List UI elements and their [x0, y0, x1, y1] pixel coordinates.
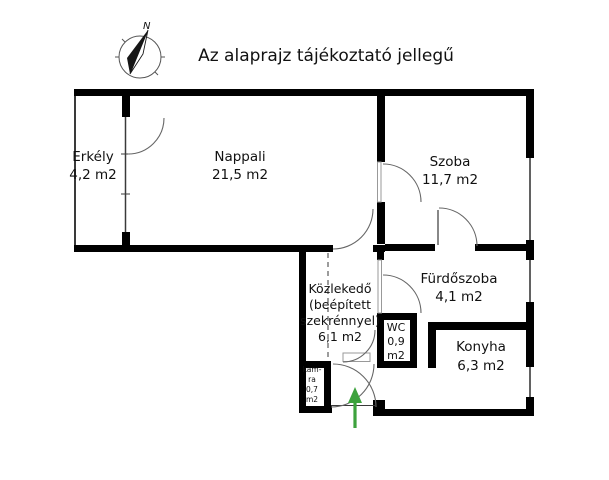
room-label-kamra: kam- ra 0,7 m2	[303, 365, 322, 405]
wall-segment	[526, 302, 534, 367]
room-area: 0,9	[387, 335, 406, 349]
room-note: szekrénnyel)	[300, 313, 380, 329]
wall-segment	[377, 202, 385, 244]
entrance-arrow-icon	[348, 387, 362, 428]
wall-segment	[377, 89, 385, 162]
room-area: 11,7 m2	[422, 171, 478, 189]
wall-segment	[74, 89, 534, 96]
door-leaf-vestibule	[343, 353, 370, 362]
wall-segment	[410, 313, 417, 368]
wall-segment	[526, 240, 534, 260]
room-name: Nappali	[212, 148, 268, 166]
room-name: Erkély	[69, 148, 117, 166]
room-label-wc: WC 0,9 m2	[387, 321, 406, 363]
door-arc-balcony	[128, 118, 164, 154]
room-label-konyha: Konyha 6,3 m2	[456, 338, 506, 376]
room-note: (beépített	[300, 297, 380, 313]
compass-north-label: N	[143, 21, 151, 32]
wall-segment	[74, 245, 333, 252]
room-name: WC	[387, 321, 406, 335]
room-area: 21,5 m2	[212, 166, 268, 184]
room-label-furdoszoba: Fürdőszoba 4,1 m2	[421, 270, 498, 306]
wall-segment	[324, 361, 331, 413]
compass-icon: N	[115, 21, 165, 78]
room-name: ra	[303, 375, 322, 385]
door-leaf-szoba-left	[378, 162, 382, 202]
wall-segment	[428, 322, 436, 368]
wall-segment	[373, 400, 385, 416]
room-area: 6,3 m2	[456, 357, 506, 376]
wall-segment	[385, 244, 435, 251]
wall-segment	[122, 89, 130, 117]
wall-segment	[373, 245, 385, 252]
wall-segment	[375, 409, 534, 416]
door-arc-szoba-left	[383, 164, 421, 202]
wall-segment	[377, 251, 384, 260]
room-area: m2	[387, 349, 406, 363]
room-name: kam-	[303, 365, 322, 375]
room-name: Közlekedő	[300, 281, 380, 297]
room-label-kozlekedo: Közlekedő (beépített szekrénnyel) 6,1 m2	[300, 281, 380, 345]
room-label-szoba: Szoba 11,7 m2	[422, 153, 478, 189]
compass-tick	[155, 72, 158, 75]
door-arc-szoba-bottom	[439, 208, 477, 246]
room-area: 6,1 m2	[300, 329, 380, 345]
plan-disclaimer-title: Az alaprajz tájékoztató jellegű	[198, 46, 454, 66]
entrance-arrow-shaft	[353, 400, 356, 428]
floorplan: N Az alaprajz tájékoztató jellegű Erkély…	[0, 0, 609, 480]
door-arc-furdoszoba	[383, 275, 421, 313]
room-area: 4,2 m2	[69, 166, 117, 184]
wall-segment	[428, 322, 534, 330]
room-area: 4,1 m2	[421, 288, 498, 306]
room-name: Szoba	[422, 153, 478, 171]
wall-segment	[122, 232, 130, 252]
wall-segment	[526, 89, 534, 158]
floorplan-linework: N	[0, 0, 609, 480]
entrance-arrow-head	[348, 387, 362, 403]
room-label-erkely: Erkély 4,2 m2	[69, 148, 117, 184]
door-arc-nappali	[333, 209, 373, 249]
wall-segment	[475, 244, 526, 251]
room-area: 0,7	[303, 385, 322, 395]
compass-tick	[122, 39, 125, 42]
room-label-nappali: Nappali 21,5 m2	[212, 148, 268, 184]
room-name: Fürdőszoba	[421, 270, 498, 288]
room-name: Konyha	[456, 338, 506, 357]
room-area: m2	[303, 395, 322, 405]
